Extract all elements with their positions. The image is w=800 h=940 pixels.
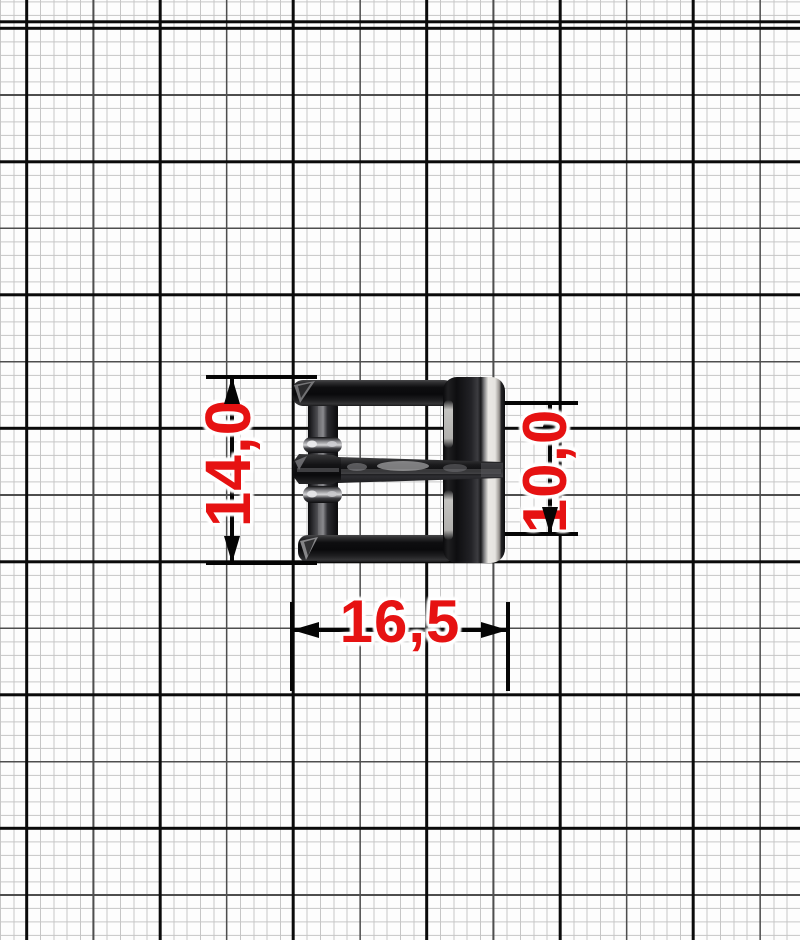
inner-chamfer-top	[444, 400, 453, 448]
pin-highlight	[443, 464, 467, 472]
pin-tip-shade	[481, 463, 503, 477]
bead-glint	[327, 491, 337, 497]
extension-line	[290, 602, 294, 691]
arrow-down-icon	[542, 507, 558, 534]
belt-buckle-image	[285, 372, 515, 568]
bead-glint	[327, 441, 337, 447]
buckle-top-bar	[292, 380, 455, 406]
arrow-down-icon	[224, 536, 240, 563]
pin-knurl-band	[341, 469, 501, 474]
extension-line	[206, 375, 317, 379]
pin-highlight	[377, 461, 429, 471]
arrow-up-icon	[224, 377, 240, 404]
pin-head-knurl	[297, 468, 339, 472]
pin-highlight	[347, 463, 367, 471]
extension-line	[206, 561, 317, 565]
extension-line	[506, 602, 510, 691]
bead-glint	[307, 441, 317, 448]
arrow-left-icon	[292, 622, 319, 638]
arrow-right-icon	[481, 622, 508, 638]
dimension-label-width: 16,5	[320, 586, 480, 658]
bead-glint	[307, 491, 317, 498]
dimension-label-height: 14,0	[192, 390, 264, 536]
buckle-bottom-bar	[298, 535, 455, 562]
inner-chamfer-bottom	[444, 490, 453, 540]
drawing-canvas: 14,0 10,0 16,5	[0, 0, 800, 940]
